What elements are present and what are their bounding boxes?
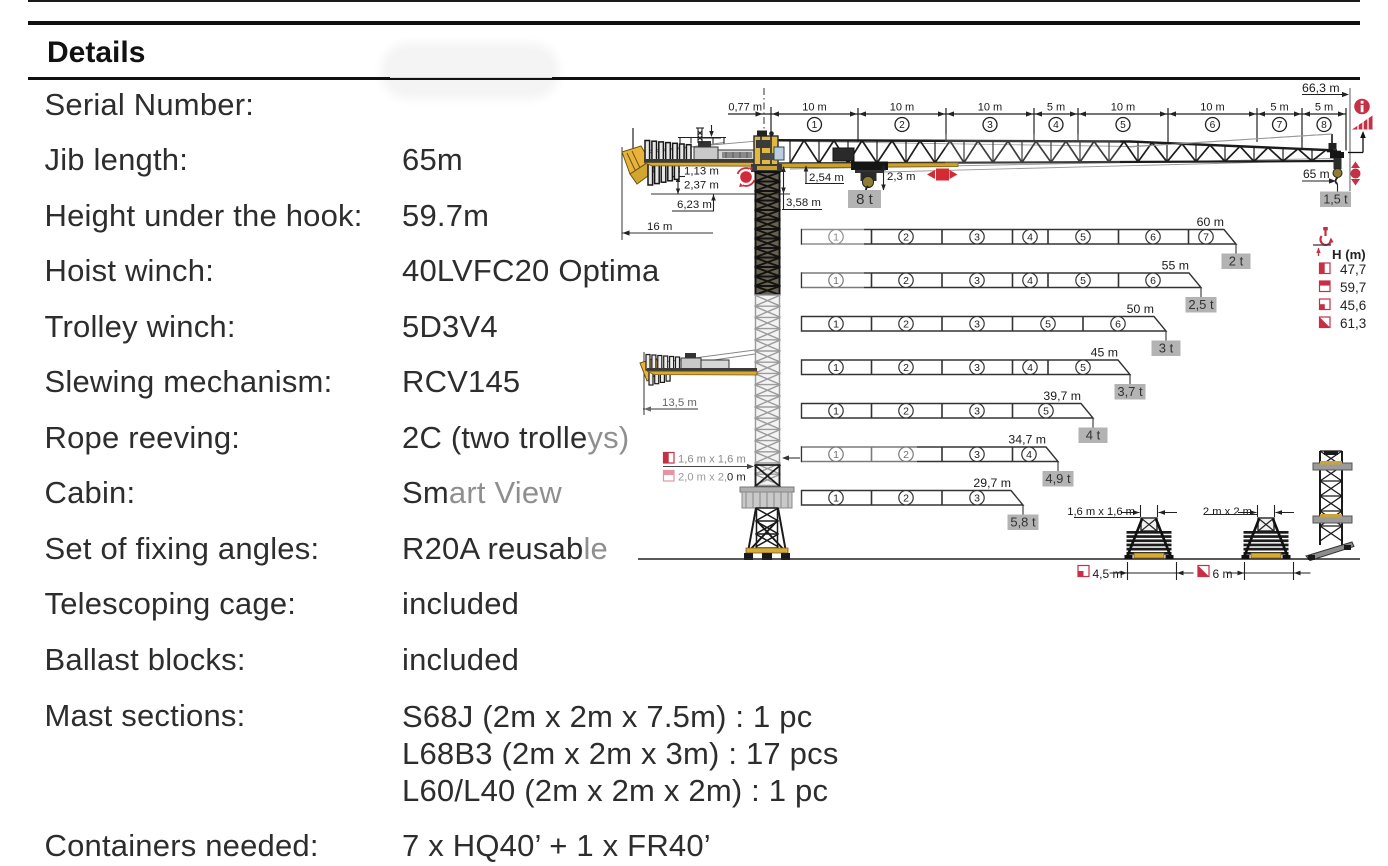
svg-text:3,58 m: 3,58 m (786, 197, 821, 209)
svg-text:2: 2 (903, 319, 909, 331)
svg-text:13,5 m: 13,5 m (662, 397, 697, 409)
svg-text:2: 2 (899, 120, 905, 131)
svg-text:10 m: 10 m (1111, 102, 1135, 114)
svg-text:5: 5 (1120, 120, 1126, 131)
svg-text:0 m: 0 m (727, 472, 746, 484)
svg-text:4: 4 (1027, 362, 1033, 374)
svg-text:8 t: 8 t (856, 191, 874, 208)
svg-text:61,3: 61,3 (1340, 316, 1366, 331)
svg-text:10 m: 10 m (1200, 102, 1224, 114)
svg-text:5: 5 (1080, 275, 1086, 287)
svg-text:65 m: 65 m (1303, 167, 1330, 181)
svg-text:6: 6 (1210, 120, 1216, 131)
svg-text:4,9 t: 4,9 t (1045, 471, 1071, 486)
svg-text:47,7: 47,7 (1340, 262, 1366, 277)
svg-text:10 m: 10 m (978, 102, 1002, 114)
svg-text:5: 5 (1045, 319, 1051, 331)
svg-text:2,37 m: 2,37 m (684, 180, 719, 192)
svg-text:6: 6 (1150, 275, 1156, 287)
svg-text:5 m: 5 m (1315, 102, 1333, 114)
svg-text:3: 3 (987, 120, 993, 131)
svg-text:2: 2 (903, 362, 909, 374)
svg-text:39,7 m: 39,7 m (1043, 389, 1081, 403)
svg-text:3: 3 (974, 275, 980, 287)
svg-text:5: 5 (1080, 362, 1086, 374)
svg-text:29,7 m: 29,7 m (973, 476, 1011, 490)
svg-text:3 t: 3 t (1159, 341, 1174, 356)
svg-text:5: 5 (1080, 232, 1086, 244)
svg-text:1,6 m x 1,6 m: 1,6 m x 1,6 m (678, 454, 746, 466)
svg-text:16 m: 16 m (647, 221, 672, 233)
svg-text:2,0 m x 2,: 2,0 m x 2, (678, 472, 727, 484)
svg-text:3: 3 (974, 232, 980, 244)
svg-text:4 t: 4 t (1086, 428, 1101, 443)
svg-text:5 m: 5 m (1047, 102, 1065, 114)
svg-text:5,8 t: 5,8 t (1010, 515, 1036, 530)
svg-text:2: 2 (903, 275, 909, 287)
svg-text:H (m): H (m) (1332, 247, 1366, 262)
svg-text:2 t: 2 t (1229, 254, 1244, 269)
svg-text:3: 3 (974, 319, 980, 331)
svg-text:10 m: 10 m (802, 102, 826, 114)
svg-text:66,3 m: 66,3 m (1302, 81, 1340, 95)
svg-text:60 m: 60 m (1197, 215, 1224, 229)
svg-text:4,5 m: 4,5 m (1093, 567, 1123, 581)
svg-text:7: 7 (1203, 232, 1209, 244)
svg-text:2,3 m: 2,3 m (887, 171, 916, 183)
svg-text:4: 4 (1027, 275, 1033, 287)
svg-text:4: 4 (1026, 449, 1032, 461)
svg-text:6: 6 (1150, 232, 1156, 244)
svg-text:1: 1 (833, 406, 839, 418)
svg-text:3: 3 (974, 362, 980, 374)
svg-text:4: 4 (1027, 232, 1033, 244)
svg-text:3,7 t: 3,7 t (1117, 384, 1143, 399)
svg-text:50 m: 50 m (1127, 302, 1154, 316)
svg-text:2,54 m: 2,54 m (809, 172, 844, 184)
svg-text:1,13 m: 1,13 m (684, 166, 719, 178)
svg-text:2: 2 (903, 493, 909, 505)
svg-text:45,6: 45,6 (1340, 298, 1366, 313)
svg-text:8: 8 (1321, 120, 1327, 131)
svg-text:0,77 m: 0,77 m (728, 102, 762, 114)
svg-text:6 m: 6 m (1213, 567, 1233, 581)
svg-text:1: 1 (812, 120, 818, 131)
svg-text:59,7: 59,7 (1340, 280, 1366, 295)
svg-text:5 m: 5 m (1270, 102, 1288, 114)
svg-text:2: 2 (903, 406, 909, 418)
svg-text:1: 1 (833, 493, 839, 505)
svg-text:10 m: 10 m (890, 102, 914, 114)
svg-text:6,23 m: 6,23 m (677, 199, 712, 211)
svg-text:5: 5 (1043, 406, 1049, 418)
svg-text:2,5 t: 2,5 t (1188, 297, 1214, 312)
svg-text:6: 6 (1115, 319, 1121, 331)
svg-text:1,5 t: 1,5 t (1323, 193, 1348, 207)
svg-text:55 m: 55 m (1162, 259, 1189, 273)
svg-text:3: 3 (974, 406, 980, 418)
svg-text:1,6 m x 1,6 m: 1,6 m x 1,6 m (1067, 506, 1135, 518)
svg-text:45 m: 45 m (1091, 346, 1118, 360)
svg-text:4: 4 (1053, 120, 1059, 131)
svg-text:3: 3 (974, 493, 980, 505)
svg-text:3: 3 (974, 449, 980, 461)
svg-text:2: 2 (903, 232, 909, 244)
svg-text:34,7 m: 34,7 m (1008, 433, 1046, 447)
svg-text:1: 1 (833, 362, 839, 374)
svg-text:1: 1 (833, 319, 839, 331)
svg-text:7: 7 (1277, 120, 1283, 131)
svg-text:2 m x 2 m: 2 m x 2 m (1203, 506, 1252, 518)
